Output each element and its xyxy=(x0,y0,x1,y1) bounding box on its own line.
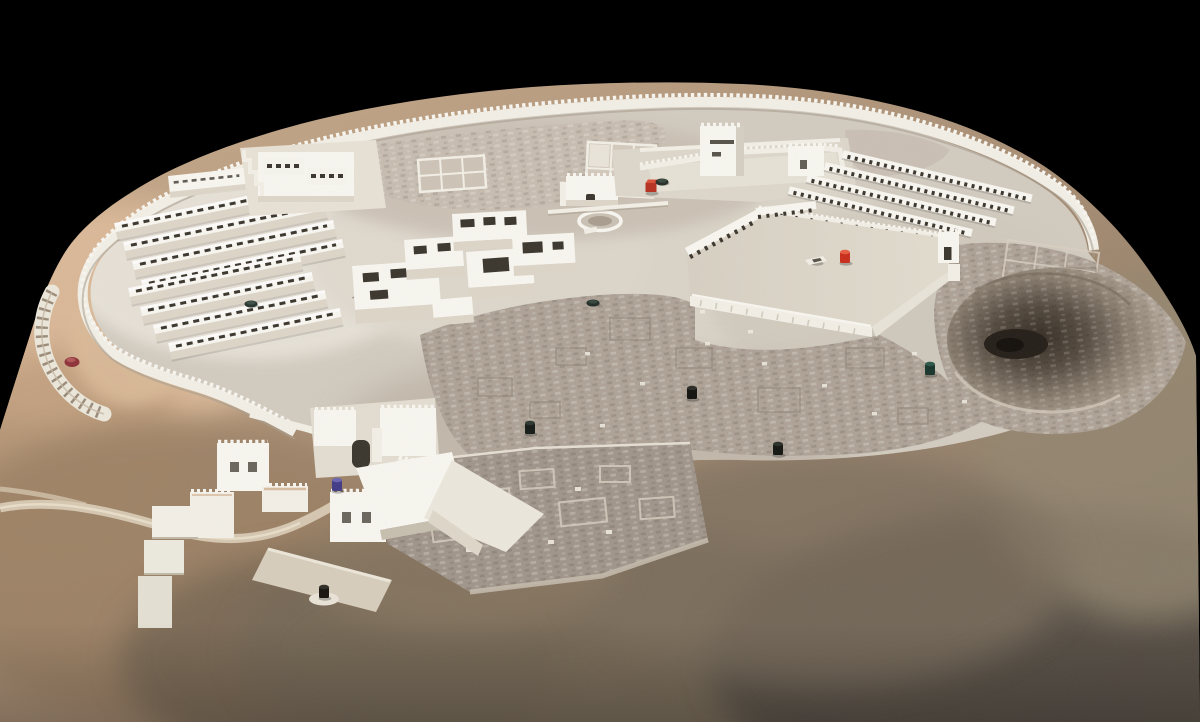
model-photo xyxy=(0,0,1200,722)
model-scene xyxy=(0,0,1200,722)
bottom-vignette xyxy=(0,622,1200,722)
